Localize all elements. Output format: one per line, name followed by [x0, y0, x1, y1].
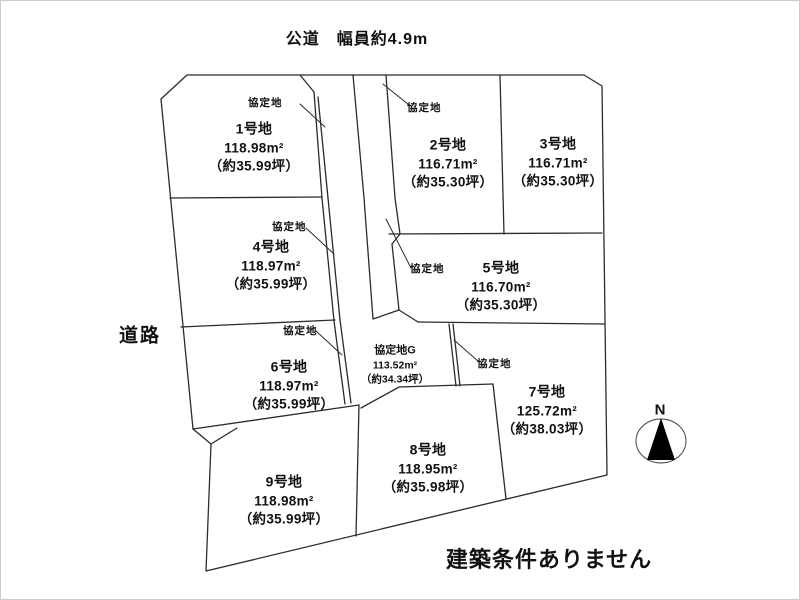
agreement-annotation-2: 協定地	[407, 100, 442, 115]
plot-2-name: 2号地	[403, 135, 493, 155]
plot-3-name: 3号地	[513, 134, 603, 154]
plot-label-9: 9号地 118.98m² （約35.99坪）	[239, 472, 329, 529]
compass-n-label: N	[655, 402, 666, 419]
left-road-label: 道路	[119, 321, 161, 348]
plot-6-tsubo: （約35.99坪）	[244, 396, 334, 415]
agreement-area-size: 113.52m²	[361, 358, 429, 372]
plot-9-area: 118.98m²	[239, 492, 329, 511]
plot-6-area: 118.97m²	[244, 377, 334, 396]
plot-label-2: 2号地 116.71m² （約35.30坪）	[403, 135, 493, 192]
plot-4-name: 4号地	[226, 237, 316, 257]
strip-line-low	[340, 320, 351, 403]
agreement-annotation-4: 協定地	[410, 261, 445, 276]
strip-line-mid	[328, 198, 340, 320]
strip-wedge-tip	[300, 75, 314, 92]
agreement-annotation-6: 協定地	[477, 356, 512, 371]
plot-4-tsubo: （約35.99坪）	[226, 276, 316, 295]
strip7-line-a	[449, 324, 456, 386]
plot-5-area: 116.70m²	[456, 278, 546, 297]
plot-3-tsubo: （約35.30坪）	[513, 173, 603, 192]
plot-5-name: 5号地	[456, 258, 546, 278]
leader-line-1	[300, 104, 325, 127]
lot9-corner-bevel	[211, 428, 237, 444]
lot6-right-edge	[334, 321, 345, 404]
lot4-right-edge	[322, 198, 334, 321]
strip-line-top	[318, 97, 328, 198]
plot-2-tsubo: （約35.30坪）	[403, 174, 493, 193]
plot-8-name: 8号地	[383, 440, 473, 460]
north-compass	[636, 418, 686, 463]
corridor-right-line	[386, 75, 400, 234]
plot-8-area: 118.95m²	[383, 460, 473, 479]
divider-lot1-lot4	[170, 197, 322, 198]
lot1-right-edge	[314, 92, 322, 198]
lot5-left-edge	[392, 234, 418, 322]
agreement-area-name: 協定地G	[361, 343, 429, 358]
plot-7-name: 7号地	[502, 382, 592, 402]
agreement-area-label: 協定地G 113.52m² （約34.34坪）	[361, 343, 429, 386]
site-plan-svg	[1, 1, 800, 600]
plot-label-3: 3号地 116.71m² （約35.30坪）	[513, 134, 603, 191]
plot-5-tsubo: （約35.30坪）	[456, 297, 546, 316]
building-conditions-note: 建築条件ありません	[446, 542, 652, 574]
plot-9-tsubo: （約35.99坪）	[239, 511, 329, 530]
corridor-left-line	[353, 75, 399, 319]
plot-1-tsubo: （約35.99坪）	[209, 158, 299, 177]
agreement-area-tsubo: （約34.34坪）	[361, 372, 429, 386]
plot-6-name: 6号地	[244, 357, 334, 377]
plot-4-area: 118.97m²	[226, 257, 316, 276]
plot-1-name: 1号地	[209, 119, 299, 139]
plot-7-tsubo: （約38.03坪）	[502, 421, 592, 440]
plot-1-area: 118.98m²	[209, 139, 299, 158]
plot-label-7: 7号地 125.72m² （約38.03坪）	[502, 382, 592, 439]
plot-9-name: 9号地	[239, 472, 329, 492]
agreement-annotation-5: 協定地	[283, 323, 318, 338]
leader-line-6	[454, 340, 479, 362]
agreement-annotation-1: 協定地	[248, 95, 283, 110]
plot-label-4: 4号地 118.97m² （約35.99坪）	[226, 237, 316, 294]
plot-label-6: 6号地 118.97m² （約35.99坪）	[244, 357, 334, 414]
plot-7-area: 125.72m²	[502, 402, 592, 421]
leader-line-5	[316, 331, 342, 355]
north-arrow-icon	[647, 418, 675, 460]
lot8-top-edge	[361, 384, 493, 408]
plot-label-8: 8号地 118.95m² （約35.98坪）	[383, 440, 473, 497]
divider-lot9-lot8	[356, 405, 359, 536]
plot-label-5: 5号地 116.70m² （約35.30坪）	[456, 258, 546, 315]
agreement-annotation-3: 協定地	[272, 219, 307, 234]
strip7-line-b	[453, 324, 460, 386]
plot-8-tsubo: （約35.98坪）	[383, 479, 473, 498]
site-plan-page: 公道 幅員約4.9m 道路 建築条件ありません N 1号地 118.98m² （…	[0, 0, 800, 600]
divider-lot23-lot5	[389, 233, 602, 234]
divider-lot5-lot7	[418, 322, 604, 324]
plot-2-area: 116.71m²	[403, 155, 493, 174]
plot-3-area: 116.71m²	[513, 154, 603, 173]
top-road-label: 公道 幅員約4.9m	[286, 25, 428, 49]
divider-lot2-lot3	[500, 75, 504, 234]
plot-label-1: 1号地 118.98m² （約35.99坪）	[209, 119, 299, 176]
